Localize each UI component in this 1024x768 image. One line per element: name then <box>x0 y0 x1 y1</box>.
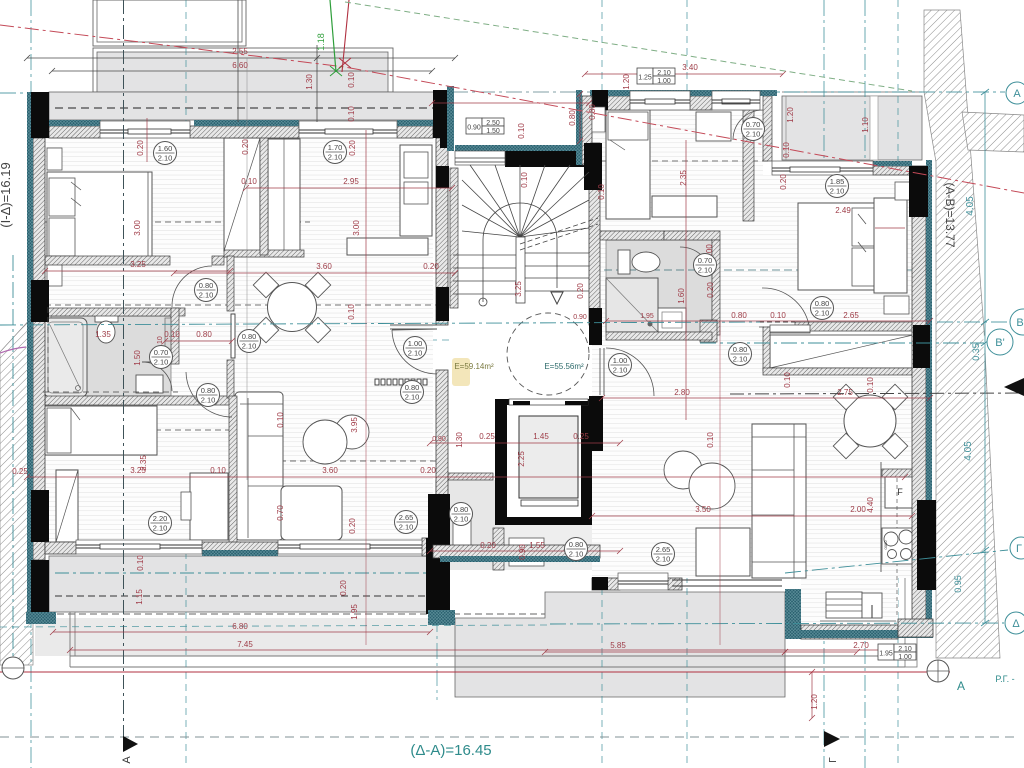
svg-text:F: F <box>897 487 903 497</box>
svg-text:1.18: 1.18 <box>316 33 326 51</box>
svg-text:2.10: 2.10 <box>405 393 420 402</box>
svg-text:1.30: 1.30 <box>305 74 314 90</box>
svg-text:0.80: 0.80 <box>731 311 747 320</box>
svg-text:0.10: 0.10 <box>517 123 526 139</box>
svg-text:0.95: 0.95 <box>953 575 963 593</box>
svg-text:2.10: 2.10 <box>656 555 671 564</box>
svg-text:3.95: 3.95 <box>350 417 359 433</box>
svg-text:Δ: Δ <box>1012 618 1020 630</box>
svg-text:2.20: 2.20 <box>153 514 168 523</box>
svg-text:2.95: 2.95 <box>343 177 359 186</box>
svg-text:0000: 0000 <box>883 540 888 550</box>
svg-text:2.35: 2.35 <box>679 170 688 186</box>
svg-text:2.10: 2.10 <box>242 342 257 351</box>
svg-text:1.95: 1.95 <box>350 604 359 620</box>
svg-text:2.55: 2.55 <box>232 47 248 56</box>
svg-text:2.65: 2.65 <box>843 311 859 320</box>
svg-text:A: A <box>1013 88 1021 100</box>
svg-text:3.60: 3.60 <box>322 466 338 475</box>
svg-text:0.80: 0.80 <box>454 505 469 514</box>
svg-text:0.10: 0.10 <box>866 377 875 393</box>
svg-text:0.20: 0.20 <box>241 139 250 155</box>
svg-text:0.25: 0.25 <box>573 432 589 441</box>
svg-text:0.90: 0.90 <box>573 314 587 321</box>
svg-text:0.80: 0.80 <box>196 330 212 339</box>
svg-text:2.10: 2.10 <box>153 524 168 533</box>
svg-text:1.20: 1.20 <box>786 107 795 123</box>
svg-text:(Ι-Δ)=16.19: (Ι-Δ)=16.19 <box>0 162 13 227</box>
svg-text:7.45: 7.45 <box>237 640 253 649</box>
svg-text:2.10: 2.10 <box>830 187 845 196</box>
svg-text:2.25: 2.25 <box>517 451 526 467</box>
svg-text:3.00: 3.00 <box>352 220 361 236</box>
svg-text:A: A <box>957 679 965 693</box>
svg-text:0.80: 0.80 <box>569 540 584 549</box>
svg-text:2.10: 2.10 <box>815 309 830 318</box>
svg-text:0.10: 0.10 <box>347 304 356 320</box>
svg-text:0.20: 0.20 <box>779 174 788 190</box>
svg-text:2.10: 2.10 <box>898 646 912 653</box>
svg-text:2.10: 2.10 <box>199 291 214 300</box>
svg-text:0.20: 0.20 <box>420 466 436 475</box>
svg-text:0.10: 0.10 <box>770 311 786 320</box>
svg-text:4.40: 4.40 <box>866 497 875 513</box>
svg-text:3.60: 3.60 <box>316 262 332 271</box>
svg-text:2.10: 2.10 <box>569 550 584 559</box>
svg-text:0.20: 0.20 <box>576 283 585 299</box>
svg-text:0.10: 0.10 <box>706 432 715 448</box>
svg-text:1.00: 1.00 <box>898 654 912 661</box>
svg-text:3.50: 3.50 <box>695 505 711 514</box>
svg-text:A: A <box>121 756 133 764</box>
svg-text:1.35: 1.35 <box>95 330 111 339</box>
svg-text:0.90: 0.90 <box>432 436 446 443</box>
svg-text:2.35: 2.35 <box>139 455 148 471</box>
svg-text:2.10: 2.10 <box>399 523 414 532</box>
svg-text:0.10: 0.10 <box>164 330 180 339</box>
svg-text:0.70: 0.70 <box>698 256 713 265</box>
svg-text:B: B <box>1016 317 1023 329</box>
svg-text:2.10: 2.10 <box>698 266 713 275</box>
svg-text:1.60: 1.60 <box>158 144 173 153</box>
svg-text:2.10: 2.10 <box>657 70 671 77</box>
svg-text:0.80: 0.80 <box>199 281 214 290</box>
svg-text:0.80: 0.80 <box>568 110 577 126</box>
svg-text:0.10: 0.10 <box>782 142 791 158</box>
svg-text:0.25: 0.25 <box>479 432 495 441</box>
svg-text:E=59.14m²: E=59.14m² <box>454 362 494 371</box>
svg-text:B': B' <box>995 337 1004 349</box>
svg-text:2.10: 2.10 <box>328 153 343 162</box>
svg-text:0.70: 0.70 <box>276 505 285 521</box>
svg-text:0.70: 0.70 <box>154 348 169 357</box>
svg-text:0.80: 0.80 <box>588 104 597 120</box>
svg-text:2.65: 2.65 <box>399 513 414 522</box>
svg-text:2.80: 2.80 <box>674 388 690 397</box>
svg-text:0.90: 0.90 <box>467 125 481 132</box>
svg-text:1.95: 1.95 <box>640 313 654 320</box>
svg-text:0.20: 0.20 <box>339 580 348 596</box>
svg-text:4.05: 4.05 <box>963 441 974 461</box>
svg-text:1.00: 1.00 <box>657 78 671 85</box>
svg-text:1.25: 1.25 <box>638 75 652 82</box>
svg-text:0.20: 0.20 <box>480 541 496 550</box>
svg-text:0.25: 0.25 <box>12 467 28 476</box>
svg-text:0.80: 0.80 <box>201 386 216 395</box>
svg-text:E=55.56m²: E=55.56m² <box>544 362 584 371</box>
svg-text:1.45: 1.45 <box>533 432 549 441</box>
svg-text:0.10: 0.10 <box>347 72 356 88</box>
svg-text:4.05: 4.05 <box>965 196 976 216</box>
svg-text:2.70: 2.70 <box>853 641 869 650</box>
svg-text:0.20: 0.20 <box>348 140 357 156</box>
svg-text:Γ: Γ <box>1016 543 1022 555</box>
svg-text:1.30: 1.30 <box>455 432 464 448</box>
svg-text:0.10: 0.10 <box>276 412 285 428</box>
svg-text:2.10: 2.10 <box>613 366 628 375</box>
svg-text:2.50: 2.50 <box>486 120 500 127</box>
svg-text:1.50: 1.50 <box>486 128 500 135</box>
svg-text:1.00: 1.00 <box>408 339 423 348</box>
svg-text:2.10: 2.10 <box>454 515 469 524</box>
svg-text:(Δ-A)=16.45: (Δ-A)=16.45 <box>410 742 491 759</box>
svg-text:0.80: 0.80 <box>733 345 748 354</box>
svg-text:2.10: 2.10 <box>408 349 423 358</box>
svg-text:6.80: 6.80 <box>232 622 248 631</box>
svg-text:1.70: 1.70 <box>328 143 343 152</box>
svg-text:1.60: 1.60 <box>677 288 686 304</box>
svg-text:0.10: 0.10 <box>210 466 226 475</box>
svg-text:3.40: 3.40 <box>682 63 698 72</box>
svg-text:2.10: 2.10 <box>201 396 216 405</box>
svg-text:0.10: 0.10 <box>597 184 606 200</box>
svg-text:1.55: 1.55 <box>529 541 545 550</box>
svg-text:0.10: 0.10 <box>520 172 529 188</box>
svg-text:6.60: 6.60 <box>232 61 248 70</box>
svg-text:0.35: 0.35 <box>971 343 981 361</box>
svg-text:3.25: 3.25 <box>514 281 523 297</box>
svg-text:1.20: 1.20 <box>810 694 819 710</box>
svg-text:2.49: 2.49 <box>835 206 851 215</box>
svg-text:1.00: 1.00 <box>613 356 628 365</box>
svg-text:2.00: 2.00 <box>850 505 866 514</box>
svg-text:Ρ.Γ. -: Ρ.Γ. - <box>995 674 1014 684</box>
svg-text:Γ: Γ <box>828 757 839 763</box>
svg-text:0.90: 0.90 <box>518 544 527 560</box>
svg-text:2.10: 2.10 <box>746 130 761 139</box>
svg-text:2.10: 2.10 <box>154 358 169 367</box>
svg-text:0.10: 0.10 <box>241 177 257 186</box>
svg-text:2.10: 2.10 <box>158 154 173 163</box>
svg-text:1.20: 1.20 <box>622 74 631 90</box>
svg-text:0.20: 0.20 <box>348 518 357 534</box>
svg-text:0.70: 0.70 <box>746 120 761 129</box>
svg-text:2.10: 2.10 <box>733 355 748 364</box>
svg-text:0.80: 0.80 <box>242 332 257 341</box>
svg-text:0.20: 0.20 <box>136 140 145 156</box>
svg-text:1.95: 1.95 <box>879 651 893 658</box>
svg-text:0.20: 0.20 <box>706 282 715 298</box>
svg-text:0.80: 0.80 <box>405 383 420 392</box>
svg-text:0.80: 0.80 <box>815 299 830 308</box>
svg-text:0.10: 0.10 <box>136 555 145 571</box>
svg-text:0.20: 0.20 <box>423 262 439 271</box>
svg-text:3.25: 3.25 <box>130 260 146 269</box>
svg-text:3.00: 3.00 <box>133 220 142 236</box>
svg-text:2.65: 2.65 <box>656 545 671 554</box>
svg-text:1.15: 1.15 <box>135 589 144 605</box>
svg-text:0.10: 0.10 <box>783 372 792 388</box>
svg-text:5.85: 5.85 <box>610 641 626 650</box>
svg-text:1.50: 1.50 <box>133 350 142 366</box>
svg-text:(A-B)=13.77: (A-B)=13.77 <box>943 182 957 247</box>
svg-text:1.10: 1.10 <box>861 117 870 133</box>
svg-text:1.85: 1.85 <box>830 177 845 186</box>
svg-text:0.10: 0.10 <box>347 106 356 122</box>
svg-text:2.75: 2.75 <box>837 388 853 397</box>
